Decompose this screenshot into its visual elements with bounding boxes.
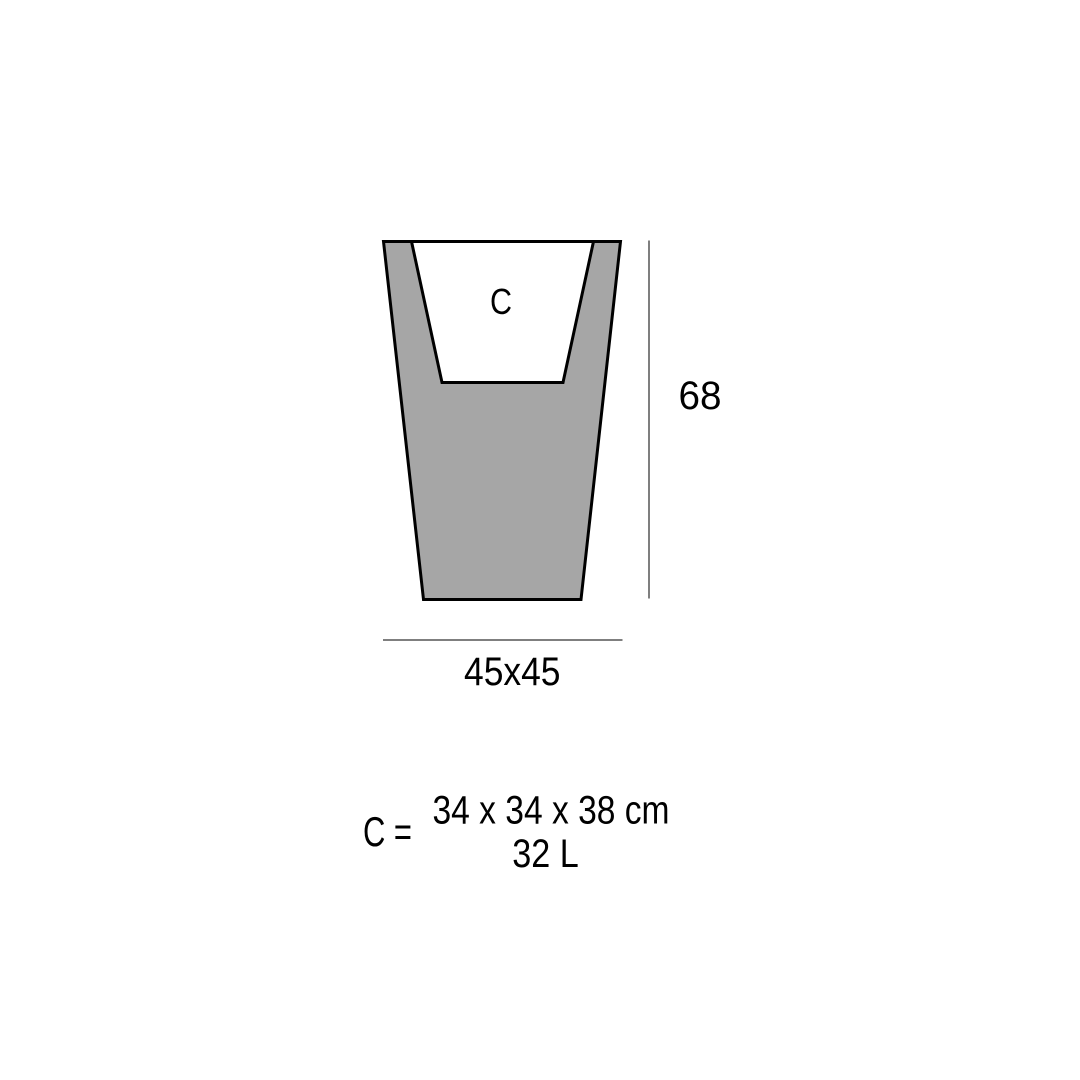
svg-text:34 x 34 x 38 cm: 34 x 34 x 38 cm [433,789,670,833]
svg-text:32 L: 32 L [512,832,579,876]
svg-text:45x45: 45x45 [464,650,561,694]
svg-text:C =: C = [363,808,412,855]
svg-text:C: C [490,281,512,322]
svg-text:68: 68 [679,374,722,418]
